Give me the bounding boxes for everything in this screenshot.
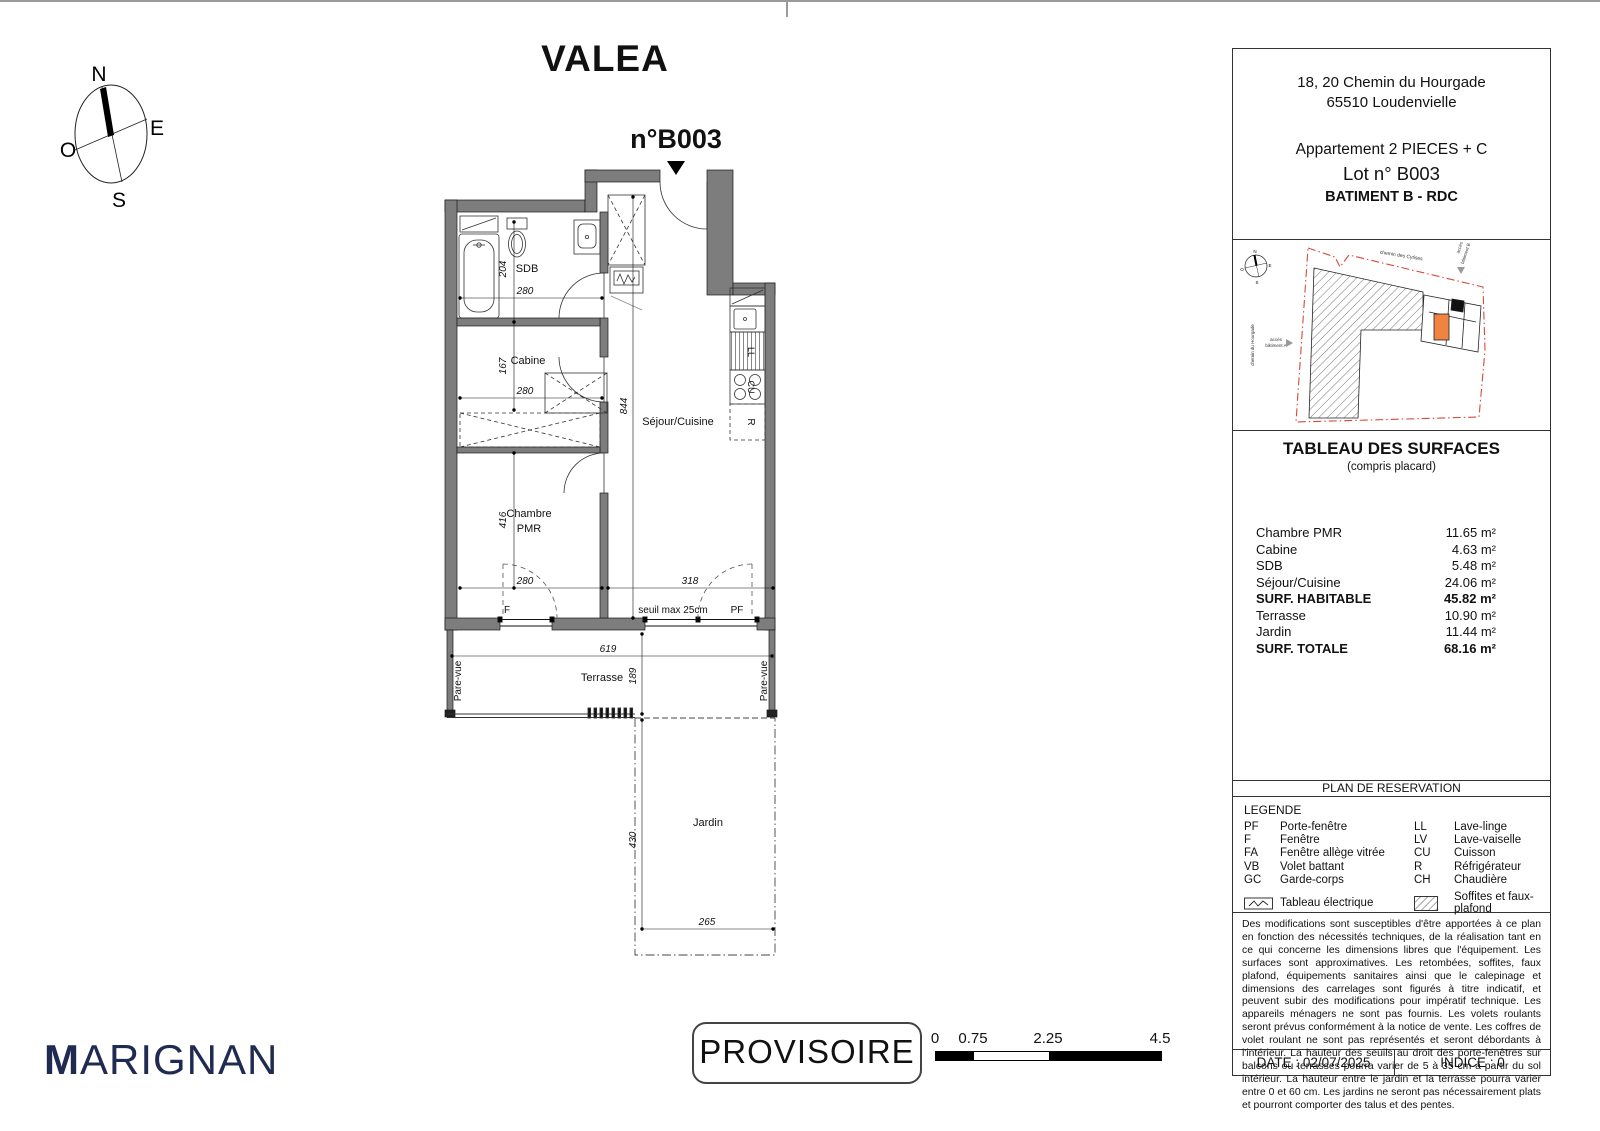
compass-n: N — [91, 63, 106, 86]
dim-844: 844 — [619, 397, 630, 414]
compass-o: O — [60, 139, 76, 162]
address-line1: 18, 20 Chemin du Hourgade — [1233, 73, 1550, 93]
disclaimer-text: Des modifications sont susceptibles d'êt… — [1242, 919, 1541, 1113]
room-sejour: Séjour/Cuisine — [642, 416, 714, 428]
legend-abbr: F — [1244, 834, 1280, 847]
highlighted-unit — [1434, 314, 1449, 340]
entry-marker-icon — [667, 161, 685, 175]
legend-elec-label: Tableau électrique — [1280, 897, 1414, 909]
street-left-label: chemin du Hourgade — [1250, 324, 1255, 366]
legend-abbr: CU — [1414, 847, 1454, 860]
room-terrasse: Terrasse — [581, 672, 623, 684]
logo-rest: ARIGNAN — [80, 1036, 278, 1083]
scale-label-225: 2.25 — [1033, 1030, 1062, 1047]
table-row: SDB5.48 m² — [1233, 558, 1550, 575]
dim-280a: 280 — [516, 286, 534, 297]
compass-needle — [100, 87, 114, 137]
site-compass-e: E — [1268, 263, 1271, 268]
sheet-border-top — [0, 0, 1600, 2]
row-value: 24.06 m² — [1445, 575, 1496, 592]
site-compass-s: S — [1255, 280, 1258, 285]
compass-rose: N E O S — [60, 55, 190, 215]
dim-430: 430 — [628, 831, 639, 848]
legend-box: LEGENDE PFPorte-fenêtreLLLave-linge FFen… — [1232, 796, 1551, 913]
site-compass-n: N — [1253, 249, 1256, 254]
room-cabine: Cabine — [511, 355, 546, 367]
dim-280c: 280 — [516, 576, 534, 587]
row-label: Chambre PMR — [1256, 525, 1342, 542]
access-b-arrow-icon — [1457, 267, 1465, 274]
row-label: Jardin — [1256, 624, 1291, 641]
table-row-total: SURF. TOTALE68.16 m² — [1233, 641, 1550, 658]
legend-abbr: FA — [1244, 847, 1280, 860]
dim-619: 619 — [600, 644, 617, 655]
legend-abbr: LL — [1414, 821, 1454, 834]
address-line2: 65510 Loudenvielle — [1233, 93, 1550, 113]
walls — [445, 170, 777, 717]
scale-label-075: 0.75 — [958, 1030, 987, 1047]
entry-door-icon — [660, 182, 707, 229]
legend-label: Cuisson — [1454, 847, 1550, 860]
building-b-shape — [1421, 295, 1481, 352]
floor-plan: 204 280 167 280 844 416 280 318 619 189 … — [430, 160, 790, 962]
legend-abbr: VB — [1244, 861, 1280, 874]
room-jardin: Jardin — [693, 817, 723, 829]
legend-label: Chaudière — [1454, 874, 1550, 887]
surface-table-title: TABLEAU DES SURFACES — [1233, 439, 1550, 459]
pf-label: PF — [731, 605, 744, 616]
site-map-box: N E O S chemin — [1232, 239, 1551, 431]
legend-abbr: PF — [1244, 821, 1280, 834]
logo-initial: M — [44, 1036, 80, 1083]
legend-abbr: R — [1414, 861, 1454, 874]
room-chambre-line2: PMR — [517, 523, 542, 535]
window-f-label: F — [504, 605, 510, 616]
building-a-shape — [1309, 268, 1423, 418]
room-sdb: SDB — [516, 263, 539, 275]
legend-label: Garde-corps — [1280, 874, 1414, 887]
room-labels: SDB Cabine Chambre PMR Séjour/Cuisine Te… — [453, 263, 770, 829]
legend-label: Volet battant — [1280, 861, 1414, 874]
legend-abbr: GC — [1244, 874, 1280, 887]
surface-table-subtitle: (compris placard) — [1233, 461, 1550, 473]
dim-265: 265 — [698, 917, 716, 928]
scale-segment — [974, 1052, 1049, 1060]
date-cell: DATE : 02/07/2025 — [1233, 1050, 1395, 1075]
table-row-total-habitable: SURF. HABITABLE45.82 m² — [1233, 591, 1550, 608]
cooktop-label: CU — [746, 381, 756, 394]
row-label: Terrasse — [1256, 608, 1306, 625]
date-indice-row: DATE : 02/07/2025 INDICE : 0 — [1232, 1049, 1551, 1076]
row-value: 45.82 m² — [1444, 591, 1496, 608]
dim-318: 318 — [682, 576, 699, 587]
row-label: SURF. HABITABLE — [1256, 591, 1371, 608]
legend-abbr: LV — [1414, 834, 1454, 847]
marignan-logo: MARIGNAN — [44, 1036, 278, 1084]
access-a-line2: bâtiment A — [1265, 343, 1286, 348]
address-box: 18, 20 Chemin du Hourgade 65510 Loudenvi… — [1232, 48, 1551, 240]
electrical-panel-symbol-icon — [1244, 897, 1274, 910]
soffites-symbol-icon — [1414, 896, 1438, 911]
table-row: Chambre PMR11.65 m² — [1233, 525, 1550, 542]
scale-label-45: 4.5 — [1150, 1030, 1171, 1047]
table-row: Jardin11.44 m² — [1233, 624, 1550, 641]
terrace-edge — [447, 708, 635, 718]
fridge-label: R — [745, 418, 756, 425]
street-top-label: chemin des Cytises — [1379, 250, 1423, 263]
legend-label: Porte-fenêtre — [1280, 821, 1414, 834]
scale-label-0: 0 — [931, 1030, 939, 1047]
row-label: SDB — [1256, 558, 1283, 575]
table-row: Cabine4.63 m² — [1233, 542, 1550, 559]
project-title: VALEA — [470, 38, 740, 80]
indice-cell: INDICE : 0 — [1395, 1050, 1550, 1075]
washer-label: LL — [746, 347, 756, 357]
sdb-door-icon — [559, 273, 604, 318]
room-chambre-line1: Chambre — [506, 508, 551, 520]
entry-closet-icon — [608, 195, 645, 265]
dim-167: 167 — [498, 357, 509, 374]
row-value: 68.16 m² — [1444, 641, 1496, 658]
surface-table-box: TABLEAU DES SURFACES (compris placard) C… — [1232, 430, 1551, 781]
toilet-icon — [507, 218, 527, 229]
disclaimer-box: Des modifications sont susceptibles d'êt… — [1232, 912, 1551, 1050]
cabine-door-icon — [559, 357, 604, 402]
building-floor: BATIMENT B - RDC — [1233, 187, 1550, 207]
stairwell-shape — [1451, 299, 1464, 312]
compass-e: E — [150, 117, 164, 140]
site-map: N E O S chemin — [1233, 240, 1550, 430]
legend-grid: PFPorte-fenêtreLLLave-linge FFenêtreLVLa… — [1233, 821, 1550, 887]
seuil-note: seuil max 25cm — [638, 605, 707, 616]
row-value: 11.65 m² — [1446, 525, 1496, 542]
floorplan-sheet: N E O S VALEA n°B003 — [0, 0, 1600, 1131]
legend-soffites-label: Soffites et faux-plafond — [1454, 891, 1550, 915]
provisoire-stamp: PROVISOIRE — [692, 1022, 922, 1084]
legend-label: Lave-vaiselle — [1454, 834, 1550, 847]
dim-204: 204 — [498, 260, 509, 278]
lot-number: Lot n° B003 — [1233, 161, 1550, 187]
legend-title: LEGENDE — [1244, 803, 1550, 817]
compass-s: S — [112, 189, 126, 212]
legend-label: Fenêtre allège vitrée — [1280, 847, 1414, 860]
surface-table: Chambre PMR11.65 m² Cabine4.63 m² SDB5.4… — [1233, 525, 1550, 657]
legend-label: Lave-linge — [1454, 821, 1550, 834]
kitchen-sink-icon — [730, 306, 765, 332]
pare-vue-left: Pare-vue — [453, 660, 464, 701]
legend-abbr: CH — [1414, 874, 1454, 887]
legend-label: Réfrigérateur — [1454, 861, 1550, 874]
row-value: 11.44 m² — [1446, 624, 1496, 641]
scale-bar-segments — [935, 1051, 1162, 1061]
reservation-bar: PLAN DE RESERVATION — [1232, 780, 1551, 797]
info-panel: 18, 20 Chemin du Hourgade 65510 Loudenvi… — [1232, 48, 1551, 1076]
row-label: SURF. TOTALE — [1256, 641, 1348, 658]
site-compass: N E O S — [1240, 249, 1271, 285]
access-a-line1: accès — [1270, 337, 1283, 342]
reservation-label: PLAN DE RESERVATION — [1322, 781, 1461, 795]
table-row: Terrasse10.90 m² — [1233, 608, 1550, 625]
apartment-type: Appartement 2 PIECES + C — [1233, 139, 1550, 161]
dim-280b: 280 — [516, 386, 534, 397]
table-row: Séjour/Cuisine24.06 m² — [1233, 575, 1550, 592]
window-swings — [503, 564, 752, 618]
chambre-door-icon — [564, 453, 604, 493]
access-a-arrow-icon — [1286, 339, 1293, 347]
sheet-border-tick — [786, 0, 788, 17]
scale-segment — [936, 1052, 974, 1060]
site-compass-o: O — [1240, 267, 1244, 272]
pare-vue-right: Pare-vue — [759, 660, 770, 701]
dim-189: 189 — [628, 667, 639, 684]
row-label: Séjour/Cuisine — [1256, 575, 1341, 592]
scale-segment — [1049, 1052, 1162, 1060]
unit-number-label: n°B003 — [596, 124, 756, 155]
bathtub-icon — [459, 234, 499, 318]
scale-bar: 0 0.75 2.25 4.5 — [933, 1030, 1163, 1062]
row-value: 5.48 m² — [1452, 558, 1496, 575]
legend-label: Fenêtre — [1280, 834, 1414, 847]
row-value: 10.90 m² — [1445, 608, 1496, 625]
row-value: 4.63 m² — [1452, 542, 1496, 559]
row-label: Cabine — [1256, 542, 1297, 559]
